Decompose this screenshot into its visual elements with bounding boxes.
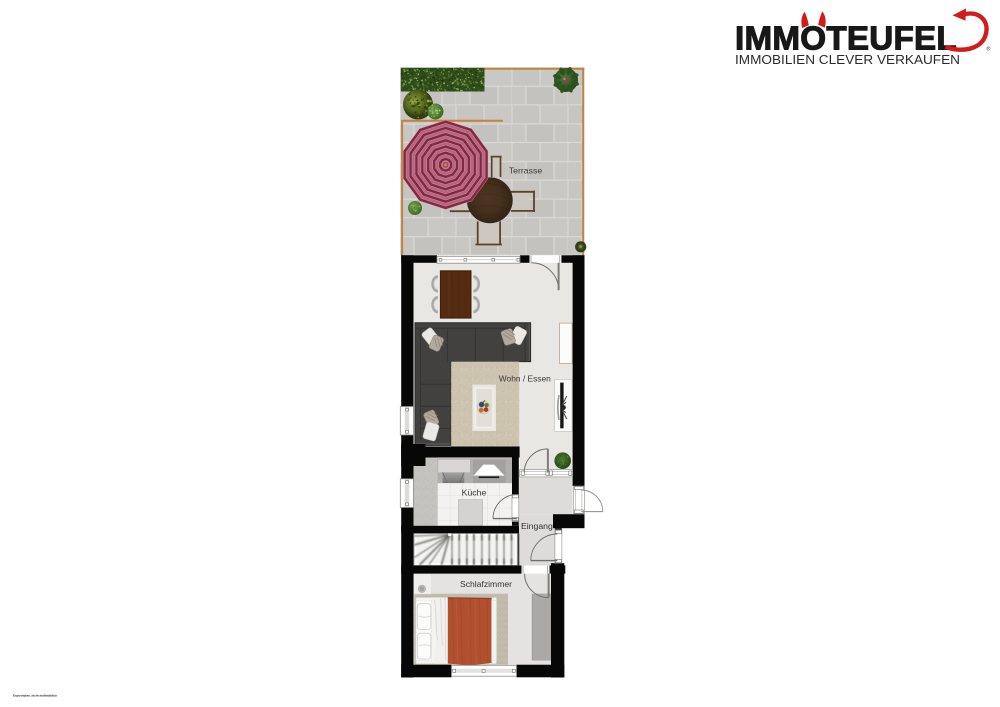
- svg-text:Eingang: Eingang: [521, 521, 553, 531]
- svg-text:IMMOBILIEN CLEVER VERKAUFEN: IMMOBILIEN CLEVER VERKAUFEN: [735, 52, 960, 67]
- svg-text:Schlafzimmer: Schlafzimmer: [460, 579, 512, 589]
- svg-text:Küche: Küche: [462, 487, 487, 497]
- svg-text:Terrasse: Terrasse: [509, 166, 542, 176]
- svg-text:®: ®: [986, 46, 991, 53]
- svg-text:Wohn / Essen: Wohn / Essen: [499, 374, 551, 384]
- svg-text:Exposéplan, nicht maßstäblich: Exposéplan, nicht maßstäblich: [13, 693, 57, 697]
